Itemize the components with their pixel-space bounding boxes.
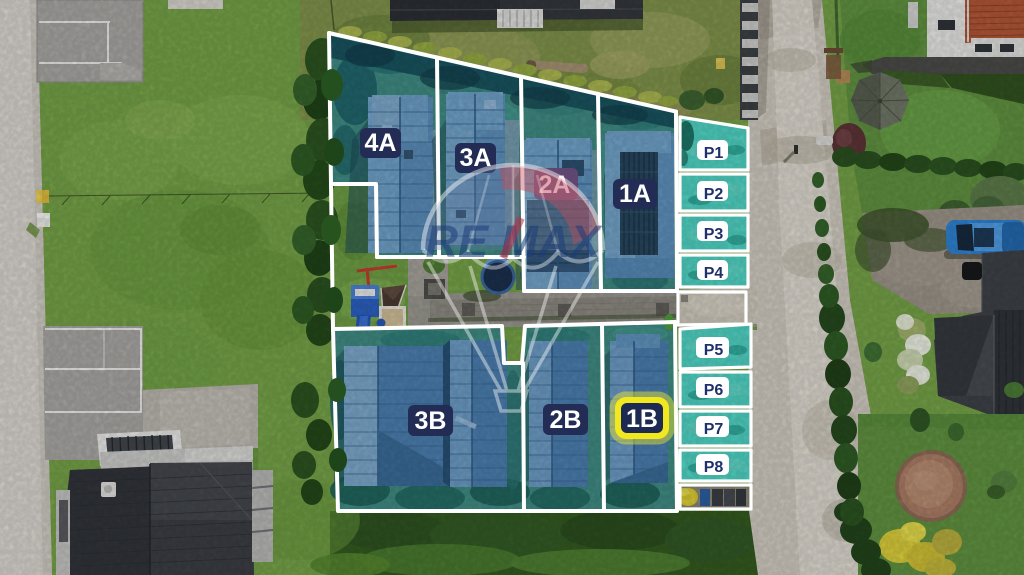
svg-text:P6: P6 bbox=[704, 382, 724, 399]
svg-text:4A: 4A bbox=[365, 129, 397, 157]
svg-text:P1: P1 bbox=[704, 145, 724, 162]
svg-text:P4: P4 bbox=[704, 265, 724, 282]
svg-text:P8: P8 bbox=[704, 459, 724, 476]
svg-text:P2: P2 bbox=[704, 186, 724, 203]
svg-text:1A: 1A bbox=[619, 180, 651, 208]
svg-text:1B: 1B bbox=[626, 405, 658, 433]
svg-text:2B: 2B bbox=[550, 406, 582, 434]
svg-text:P3: P3 bbox=[704, 226, 724, 243]
svg-text:P5: P5 bbox=[704, 342, 724, 359]
svg-text:P7: P7 bbox=[704, 421, 724, 438]
svg-text:3B: 3B bbox=[415, 407, 447, 435]
